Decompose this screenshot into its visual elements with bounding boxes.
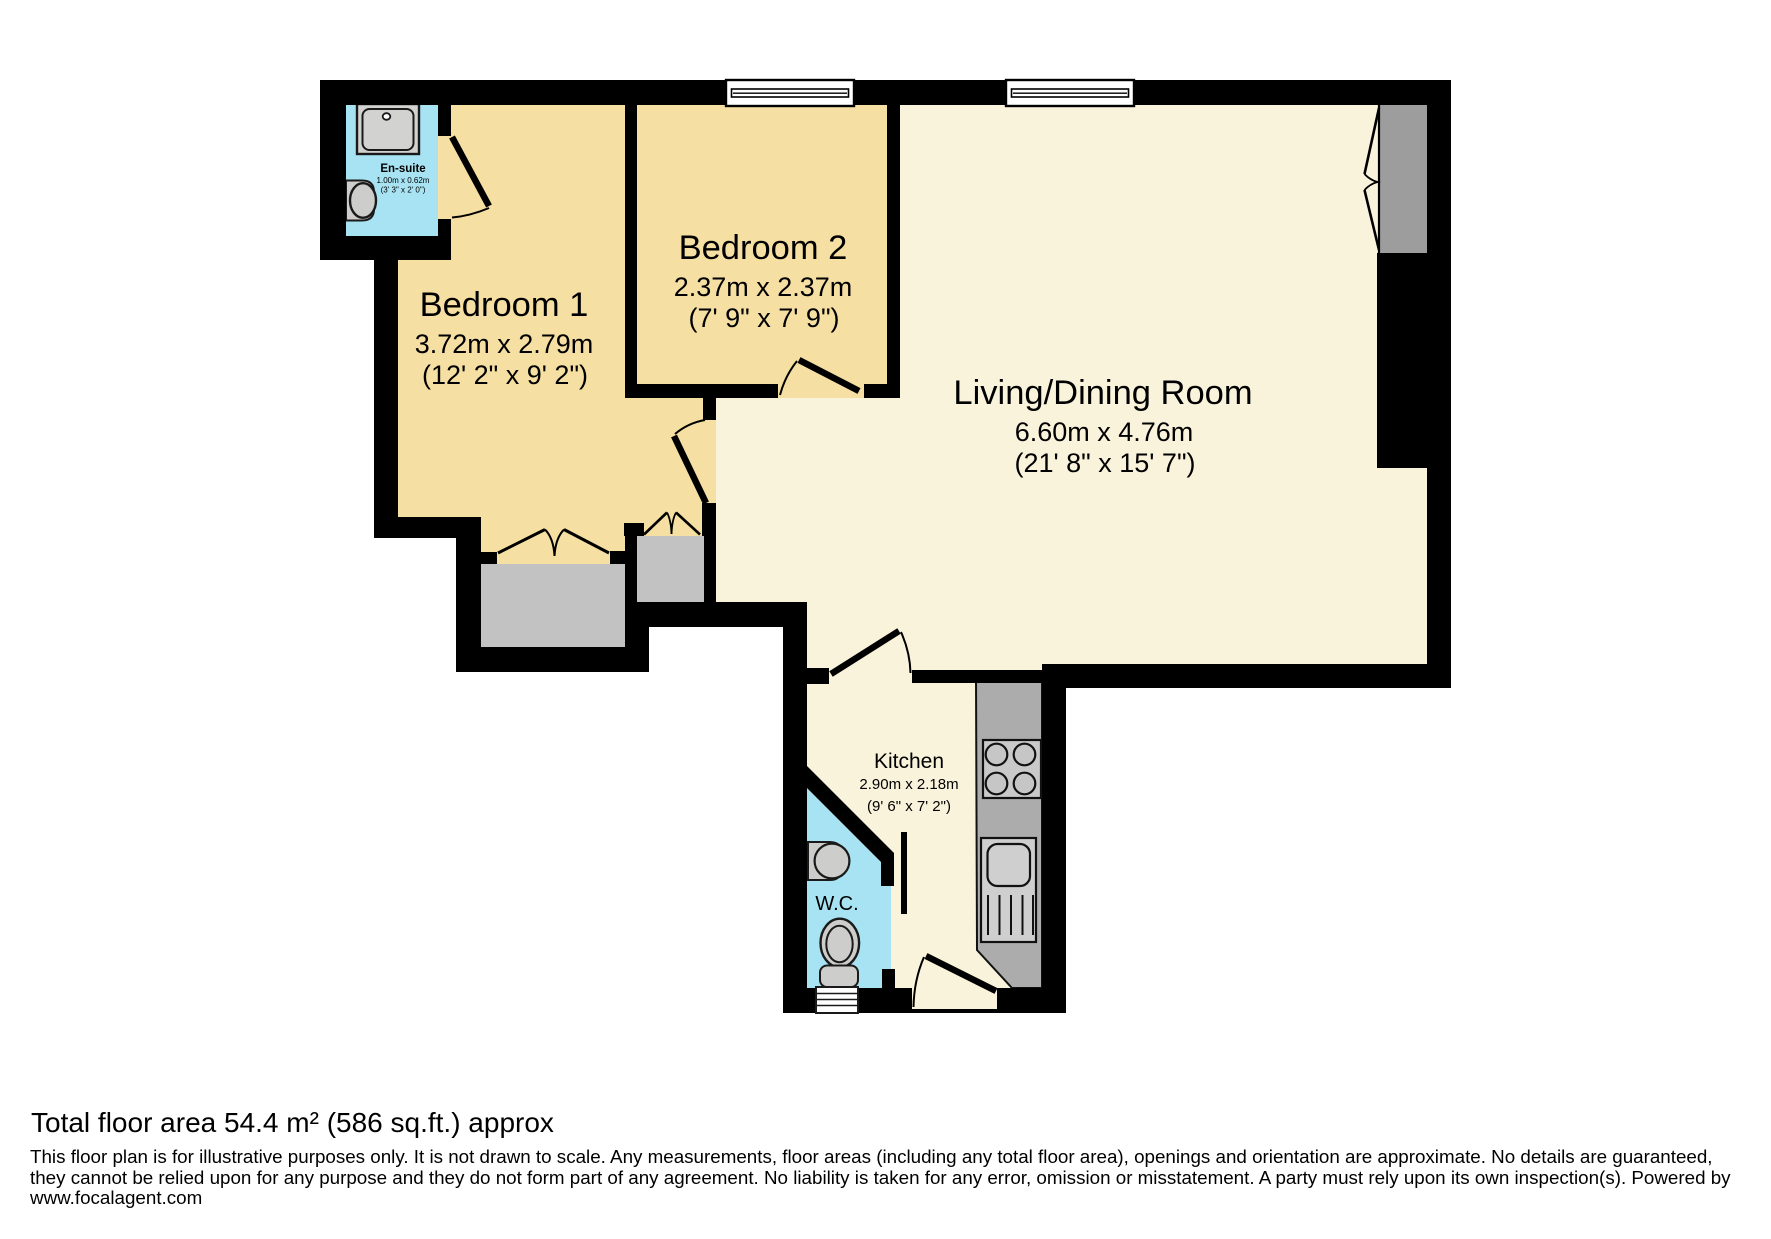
svg-text:2.37m x 2.37m: 2.37m x 2.37m [674,272,853,302]
svg-text:Living/Dining Room: Living/Dining Room [953,374,1252,412]
svg-text:they cannot be relied upon for: they cannot be relied upon for any purpo… [30,1167,1731,1188]
svg-text:Total floor area 54.4 m² (586: Total floor area 54.4 m² (586 sq.ft.) ap… [31,1107,554,1138]
svg-text:(12' 2" x 9' 2"): (12' 2" x 9' 2") [422,360,588,390]
svg-text:Bedroom 2: Bedroom 2 [679,229,848,267]
svg-text:(21' 8" x 15' 7"): (21' 8" x 15' 7") [1014,448,1195,478]
svg-text:En-suite: En-suite [380,163,425,175]
svg-text:3.72m x 2.79m: 3.72m x 2.79m [415,329,594,359]
svg-text:(7' 9" x 7' 9"): (7' 9" x 7' 9") [688,303,839,333]
svg-text:2.90m x 2.18m: 2.90m x 2.18m [859,776,958,793]
svg-text:6.60m x 4.76m: 6.60m x 4.76m [1015,417,1194,447]
svg-text:This floor plan is for illustr: This floor plan is for illustrative purp… [30,1146,1713,1167]
svg-text:W.C.: W.C. [815,893,858,915]
svg-text:(3' 3" x 2' 0"): (3' 3" x 2' 0") [381,186,426,195]
svg-text:1.00m x 0.62m: 1.00m x 0.62m [377,176,430,185]
svg-text:(9' 6" x 7' 2"): (9' 6" x 7' 2") [867,798,951,815]
svg-text:www.focalagent.com: www.focalagent.com [29,1187,202,1208]
svg-text:Kitchen: Kitchen [874,750,944,773]
svg-text:Bedroom 1: Bedroom 1 [420,286,589,324]
